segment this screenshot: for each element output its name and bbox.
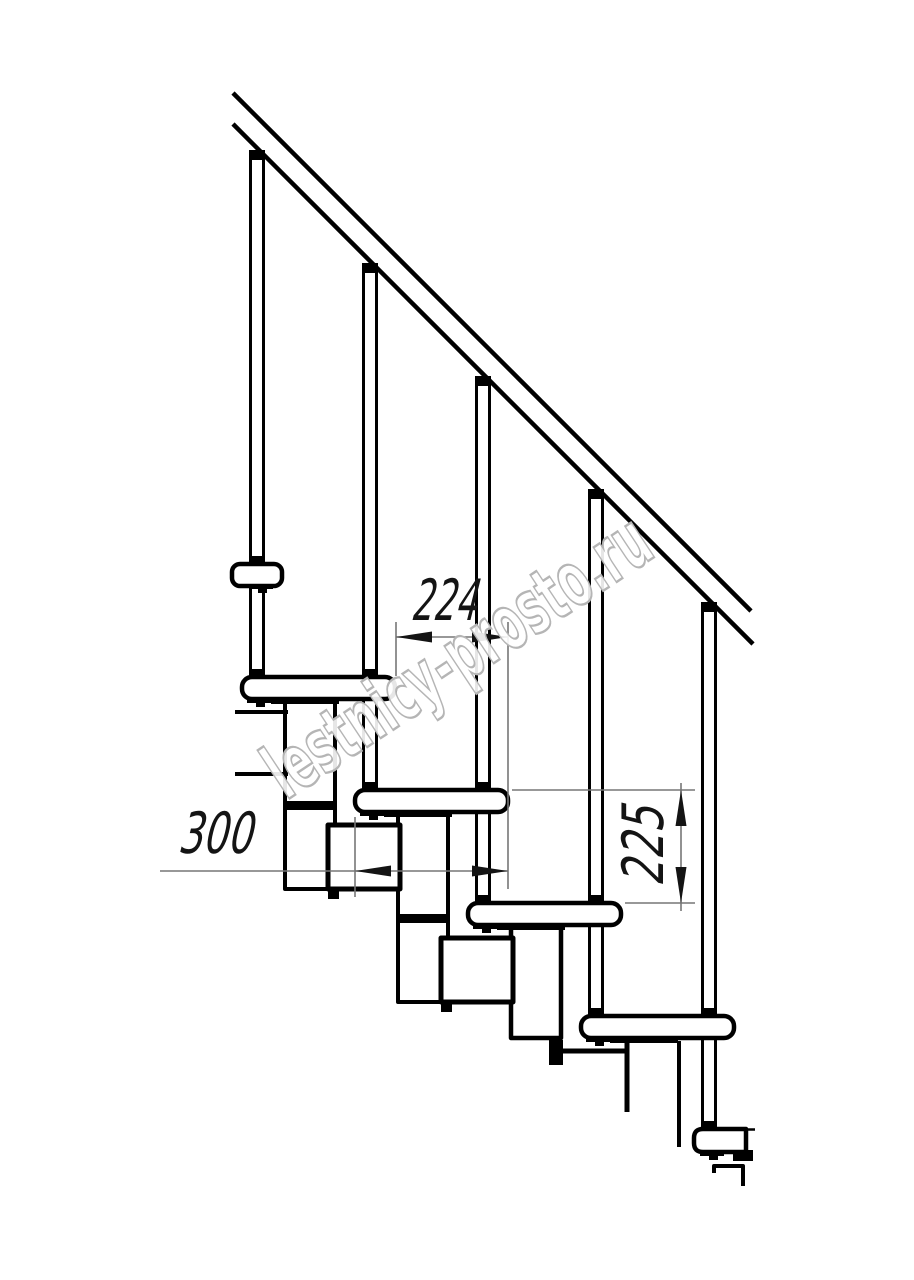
- upper-bracket: [232, 564, 282, 586]
- rail-collar: [249, 150, 265, 160]
- tread-tab: [360, 811, 385, 820]
- module-joint: [396, 914, 450, 923]
- tread-2: [355, 790, 508, 812]
- tread-tab: [586, 1037, 611, 1046]
- dimension-label-300: 300: [174, 800, 265, 867]
- rail-collar: [701, 602, 717, 612]
- module-foot: [328, 889, 339, 899]
- handrail-top-edge: [233, 93, 751, 611]
- rail-collar: [588, 489, 604, 499]
- tread-tab: [473, 924, 498, 933]
- dimension-label-225: 225: [610, 794, 677, 891]
- tread-4: [581, 1016, 734, 1038]
- arrow-up-icon: [676, 790, 687, 826]
- tread-tab: [247, 698, 272, 707]
- handrail: [233, 93, 753, 644]
- tread-3: [468, 903, 621, 925]
- floor-joint: [733, 1150, 753, 1161]
- baluster: [703, 602, 716, 1132]
- rail-collar: [362, 263, 378, 273]
- module-foot: [441, 1002, 452, 1012]
- module-stub: [549, 1040, 563, 1065]
- bracket-tab: [249, 585, 273, 593]
- bracket-tab: [700, 1151, 724, 1160]
- site-watermark: lestnicy-prosto.ru: [248, 496, 668, 816]
- module-box: [441, 938, 513, 1002]
- module-tube: [511, 927, 561, 1038]
- rail-collar: [475, 376, 491, 386]
- modular-staircase-side-elevation: 224 300 225 lestnicy-prosto.ru: [0, 0, 914, 1280]
- arrow-down-icon: [676, 867, 687, 903]
- staircase-drawing-page: 224 300 225 lestnicy-prosto.ru: [0, 0, 914, 1280]
- handrail-bottom-edge: [233, 124, 753, 644]
- baluster: [251, 150, 264, 680]
- module-box-cut-lower: [554, 1041, 679, 1147]
- floor-mount-cut-line: [714, 1166, 743, 1186]
- module-box: [328, 825, 400, 889]
- base-bracket: [694, 1129, 746, 1152]
